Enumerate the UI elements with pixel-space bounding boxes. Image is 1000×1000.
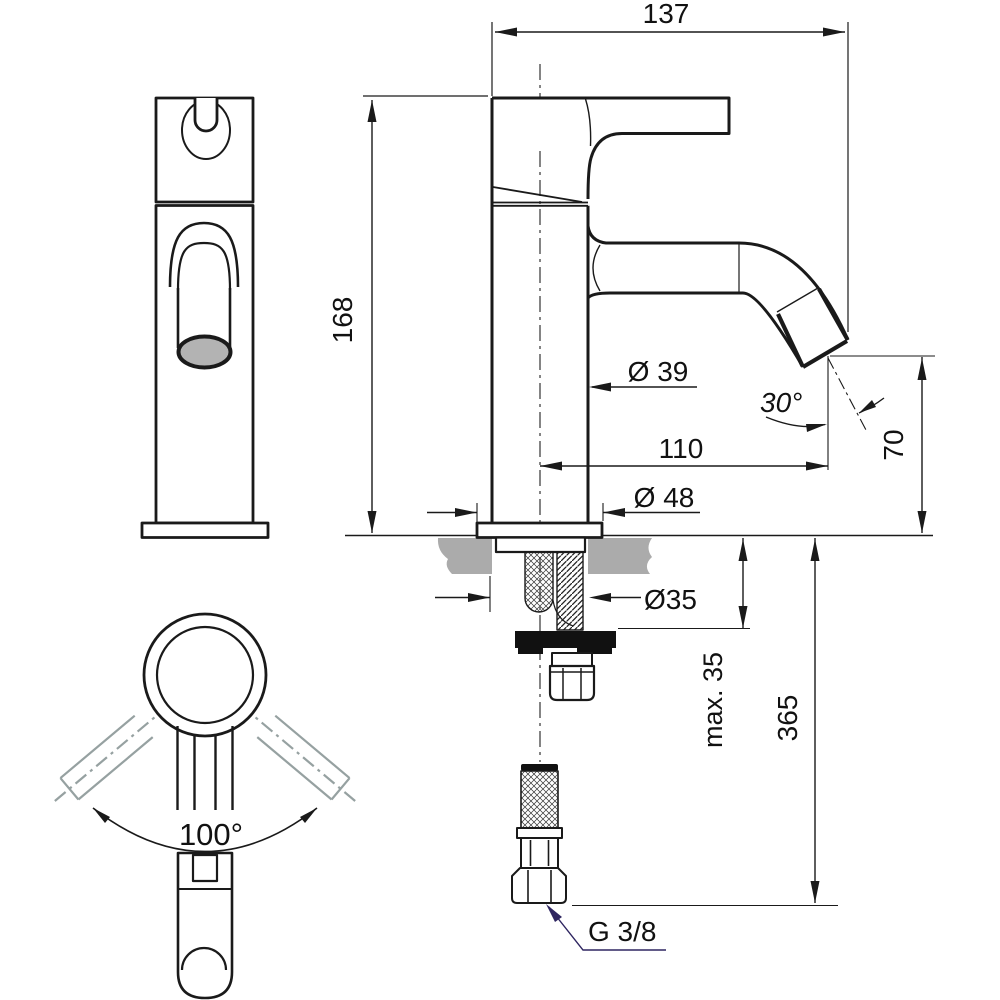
dim-110-arrow-left xyxy=(540,462,562,471)
aerator-outlet-face xyxy=(803,341,847,367)
counter-section-right xyxy=(588,538,652,574)
hose-top-cap xyxy=(521,764,558,771)
dim-137-arrow-left xyxy=(495,28,517,37)
dim-35-arrow-right xyxy=(589,593,611,602)
dim-168-label: 168 xyxy=(327,297,358,344)
dim-168-arrow-bottom xyxy=(368,511,377,533)
front-spout-outlet xyxy=(179,337,231,368)
dim-365-label: 365 xyxy=(772,695,803,742)
hose-braid xyxy=(521,771,558,828)
dim-35-label: Ø35 xyxy=(644,584,697,615)
dim-30-arrow-right xyxy=(859,400,876,413)
dim-max35-arrow-bottom xyxy=(739,606,748,628)
dim-30-label: 30° xyxy=(760,387,802,418)
aerator-joint-line xyxy=(777,288,818,312)
side-body-top-handle xyxy=(492,98,729,199)
mounting-nut xyxy=(550,666,594,700)
dim-39-arrow xyxy=(589,383,611,392)
dim-70-arrow-bottom xyxy=(918,511,927,533)
dim-30-arrow-left xyxy=(806,424,827,432)
dim-110-label: 110 xyxy=(659,433,704,464)
thread-size-label: G 3/8 xyxy=(588,916,656,947)
dim-137-label: 137 xyxy=(643,0,690,29)
faucet-dimension-drawing: 100° xyxy=(0,0,1000,1000)
dim-max35-label: max. 35 xyxy=(698,652,728,748)
technical-drawing-page: 100° xyxy=(0,0,1000,1000)
washer-tab-left xyxy=(518,648,543,654)
side-handle-wedge xyxy=(493,187,582,202)
dim-168-arrow-top xyxy=(368,100,377,122)
hose-collar xyxy=(517,828,562,838)
front-base-flange xyxy=(142,523,268,538)
spout-back-curve xyxy=(593,245,600,291)
shank-connector xyxy=(552,653,592,666)
plan-lever-grip xyxy=(178,853,232,998)
hose-in-shank xyxy=(525,552,553,612)
dim-365-arrow-top xyxy=(811,539,820,561)
dim-39-label: Ø 39 xyxy=(628,356,689,387)
front-handle-notch xyxy=(195,98,217,131)
hose-slotted-section xyxy=(521,838,558,868)
aerator-outer-edge xyxy=(819,289,848,340)
base-flange xyxy=(477,523,602,538)
mounting-washer xyxy=(515,631,616,648)
threaded-shank xyxy=(557,552,583,630)
plan-body-outer xyxy=(144,614,266,736)
plan-view xyxy=(45,614,365,998)
dim-110-arrow-right xyxy=(806,462,828,471)
dim-35-arrow-left xyxy=(468,593,490,602)
swivel-angle-label: 100° xyxy=(179,817,243,852)
front-view xyxy=(142,98,268,538)
dim-max35-arrow-top xyxy=(739,539,748,561)
dim-48-arrow-right xyxy=(603,508,625,517)
swivel-arc-arrow-left xyxy=(93,808,110,823)
hose-end-nut xyxy=(512,868,566,903)
mounting-collar xyxy=(496,538,585,553)
dim-70-label: 70 xyxy=(878,429,909,460)
spout-bottom-edge xyxy=(588,293,803,367)
dim-70-arrow-top xyxy=(918,358,927,380)
dim-48-label: Ø 48 xyxy=(634,482,695,513)
dim-48-arrow-left xyxy=(455,508,477,517)
dim-137-arrow-right xyxy=(823,28,845,37)
swivel-arc-arrow-right xyxy=(300,808,317,823)
dim-137-ext-lines xyxy=(492,22,848,332)
aerator-inner-edge xyxy=(778,314,803,366)
plan-lever-arm xyxy=(178,726,233,810)
dim-365-arrow-bottom xyxy=(811,881,820,903)
spout-top-edge xyxy=(588,226,848,340)
counter-section-left xyxy=(438,538,492,574)
outlet-axis-inclined xyxy=(828,358,866,430)
side-body-split-lines xyxy=(492,203,588,206)
